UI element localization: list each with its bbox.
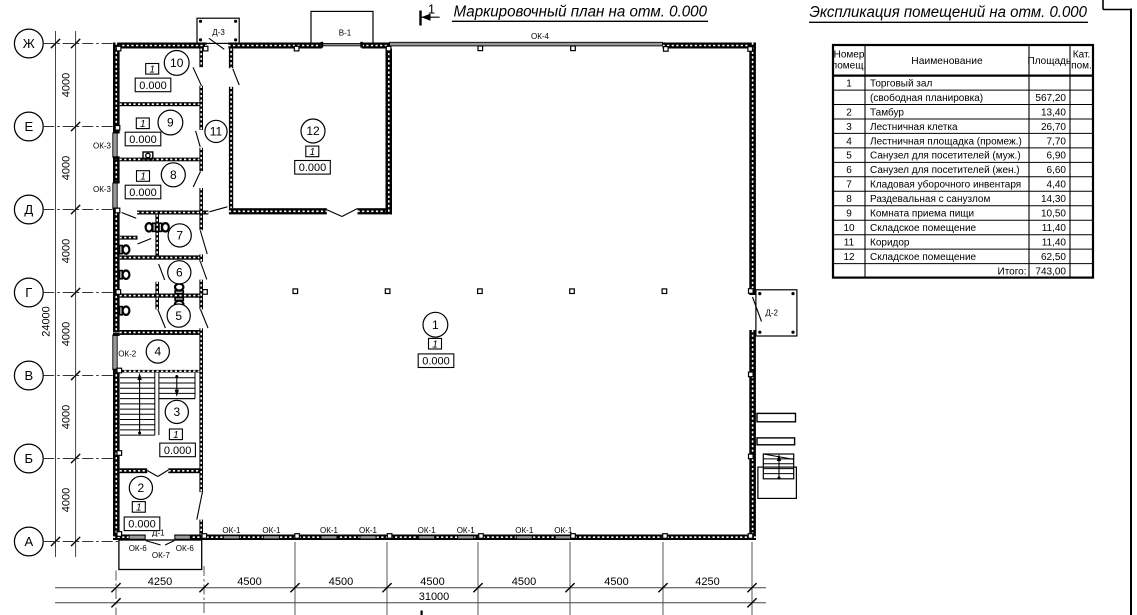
svg-text:В-1: В-1 — [339, 28, 352, 37]
svg-text:ОК-1: ОК-1 — [515, 526, 534, 535]
svg-text:6: 6 — [846, 165, 852, 176]
svg-text:Торговый зал: Торговый зал — [870, 78, 932, 89]
svg-text:6,90: 6,90 — [1047, 151, 1067, 162]
svg-text:Кат.: Кат. — [1073, 50, 1090, 61]
svg-text:Комната приема пищи: Комната приема пищи — [870, 209, 974, 220]
svg-text:Е: Е — [24, 119, 33, 134]
svg-text:5: 5 — [175, 309, 182, 323]
svg-text:В: В — [24, 368, 33, 383]
svg-text:Д-2: Д-2 — [765, 309, 778, 318]
svg-text:4500: 4500 — [420, 576, 444, 588]
svg-text:11: 11 — [844, 238, 855, 249]
svg-text:Г: Г — [25, 285, 32, 300]
svg-text:ОК-1: ОК-1 — [222, 526, 241, 535]
svg-text:4000: 4000 — [61, 156, 73, 180]
svg-text:4250: 4250 — [148, 576, 172, 588]
svg-text:4: 4 — [154, 345, 161, 359]
svg-text:8: 8 — [846, 194, 852, 205]
svg-text:0.000: 0.000 — [422, 356, 450, 368]
svg-text:ОК-1: ОК-1 — [554, 526, 573, 535]
svg-text:Ж: Ж — [23, 36, 35, 51]
svg-text:ОК-6: ОК-6 — [176, 544, 195, 553]
svg-text:помещ.: помещ. — [832, 61, 866, 72]
svg-text:3: 3 — [846, 122, 852, 133]
svg-text:Тамбур: Тамбур — [870, 106, 904, 118]
svg-text:10: 10 — [843, 223, 855, 234]
svg-text:1: 1 — [432, 339, 438, 350]
svg-text:743,00: 743,00 — [1035, 266, 1066, 277]
svg-text:Коридор: Коридор — [870, 238, 910, 249]
svg-text:ОК-1: ОК-1 — [262, 526, 281, 535]
svg-text:Раздевальная с санузлом: Раздевальная с санузлом — [870, 194, 990, 205]
svg-text:Лестничная клетка: Лестничная клетка — [870, 122, 958, 133]
svg-text:4000: 4000 — [61, 73, 73, 97]
svg-text:2: 2 — [846, 107, 852, 118]
svg-text:26,70: 26,70 — [1041, 122, 1066, 133]
svg-text:А: А — [24, 534, 33, 549]
svg-text:Итого:: Итого: — [998, 266, 1027, 277]
svg-text:62,50: 62,50 — [1041, 252, 1066, 263]
svg-text:Лестничная площадка (промеж.): Лестничная площадка (промеж.) — [870, 136, 1022, 147]
svg-text:12: 12 — [306, 124, 320, 138]
svg-text:4500: 4500 — [329, 576, 353, 588]
svg-text:ОК-3: ОК-3 — [93, 185, 112, 194]
svg-text:Экспликация помещений на отм.: Экспликация помещений на отм. 0.000 — [810, 4, 1088, 21]
svg-text:4500: 4500 — [604, 576, 628, 588]
svg-text:11,40: 11,40 — [1042, 223, 1067, 234]
svg-text:4000: 4000 — [61, 322, 73, 346]
svg-text:11,40: 11,40 — [1042, 238, 1067, 249]
svg-text:9: 9 — [167, 116, 174, 130]
svg-text:0.000: 0.000 — [299, 162, 327, 174]
svg-text:4: 4 — [846, 136, 852, 147]
svg-text:567,20: 567,20 — [1035, 93, 1066, 104]
svg-text:6,60: 6,60 — [1047, 165, 1067, 176]
svg-text:9: 9 — [846, 209, 852, 220]
svg-text:Санузел для посетителей (жен.): Санузел для посетителей (жен.) — [870, 165, 1020, 176]
svg-text:5: 5 — [846, 151, 852, 162]
svg-text:4500: 4500 — [237, 576, 261, 588]
svg-text:1: 1 — [140, 119, 146, 130]
svg-text:4,40: 4,40 — [1047, 180, 1067, 191]
svg-text:7,70: 7,70 — [1047, 136, 1067, 147]
svg-text:13,40: 13,40 — [1041, 107, 1066, 118]
svg-text:ОК-1: ОК-1 — [418, 526, 437, 535]
svg-text:(свободная планировка): (свободная планировка) — [870, 92, 983, 104]
svg-text:Складское помещение: Складское помещение — [870, 223, 977, 234]
svg-text:0.000: 0.000 — [139, 80, 167, 92]
svg-text:0.000: 0.000 — [129, 187, 157, 199]
svg-text:Д: Д — [24, 202, 33, 217]
svg-text:0.000: 0.000 — [128, 519, 156, 531]
svg-text:12: 12 — [843, 252, 855, 263]
svg-text:6: 6 — [176, 266, 183, 280]
svg-text:2: 2 — [138, 481, 145, 495]
svg-text:4000: 4000 — [61, 405, 73, 429]
svg-text:1: 1 — [136, 503, 142, 514]
svg-text:ОК-3: ОК-3 — [93, 142, 112, 151]
svg-text:пом.: пом. — [1071, 61, 1092, 72]
svg-text:31000: 31000 — [419, 591, 450, 603]
svg-text:7: 7 — [846, 180, 852, 191]
svg-text:4500: 4500 — [512, 576, 536, 588]
svg-text:3: 3 — [173, 405, 180, 419]
svg-text:ОК-4: ОК-4 — [531, 32, 550, 41]
svg-text:14,30: 14,30 — [1041, 194, 1066, 205]
svg-text:Б: Б — [25, 451, 34, 466]
svg-text:1: 1 — [310, 147, 316, 158]
svg-text:8: 8 — [170, 168, 177, 182]
svg-text:1: 1 — [140, 172, 146, 183]
svg-text:1: 1 — [428, 2, 435, 17]
svg-text:4000: 4000 — [61, 488, 73, 512]
svg-text:4000: 4000 — [61, 239, 73, 263]
svg-text:ОК-1: ОК-1 — [359, 526, 378, 535]
svg-text:ОК-1: ОК-1 — [457, 526, 476, 535]
svg-text:10,50: 10,50 — [1041, 209, 1066, 220]
svg-text:Номер: Номер — [834, 50, 865, 61]
svg-text:0.000: 0.000 — [164, 445, 192, 457]
svg-text:Кладовая уборочного инвентаря: Кладовая уборочного инвентаря — [870, 179, 1021, 191]
svg-text:ОК-7: ОК-7 — [152, 551, 171, 560]
svg-text:Складское помещение: Складское помещение — [870, 252, 977, 263]
svg-text:24000: 24000 — [40, 306, 52, 337]
svg-text:Санузел для посетителей (муж.): Санузел для посетителей (муж.) — [870, 151, 1021, 162]
svg-text:7: 7 — [176, 229, 183, 243]
svg-text:ОК-2: ОК-2 — [118, 350, 137, 359]
svg-text:Площадь: Площадь — [1028, 56, 1072, 67]
svg-text:4250: 4250 — [695, 576, 719, 588]
svg-text:1: 1 — [149, 64, 155, 75]
svg-text:1: 1 — [173, 430, 179, 441]
svg-text:1: 1 — [846, 78, 852, 89]
svg-text:Д-3: Д-3 — [212, 28, 225, 37]
svg-text:11: 11 — [210, 125, 223, 139]
svg-text:Маркировочный план на отм. 0.0: Маркировочный план на отм. 0.000 — [454, 4, 708, 21]
svg-text:ОК-1: ОК-1 — [320, 526, 339, 535]
svg-text:Наименование: Наименование — [911, 56, 983, 67]
svg-text:ОК-6: ОК-6 — [129, 544, 148, 553]
svg-text:1: 1 — [432, 318, 439, 332]
svg-text:0.000: 0.000 — [129, 134, 157, 146]
svg-text:10: 10 — [170, 56, 184, 70]
